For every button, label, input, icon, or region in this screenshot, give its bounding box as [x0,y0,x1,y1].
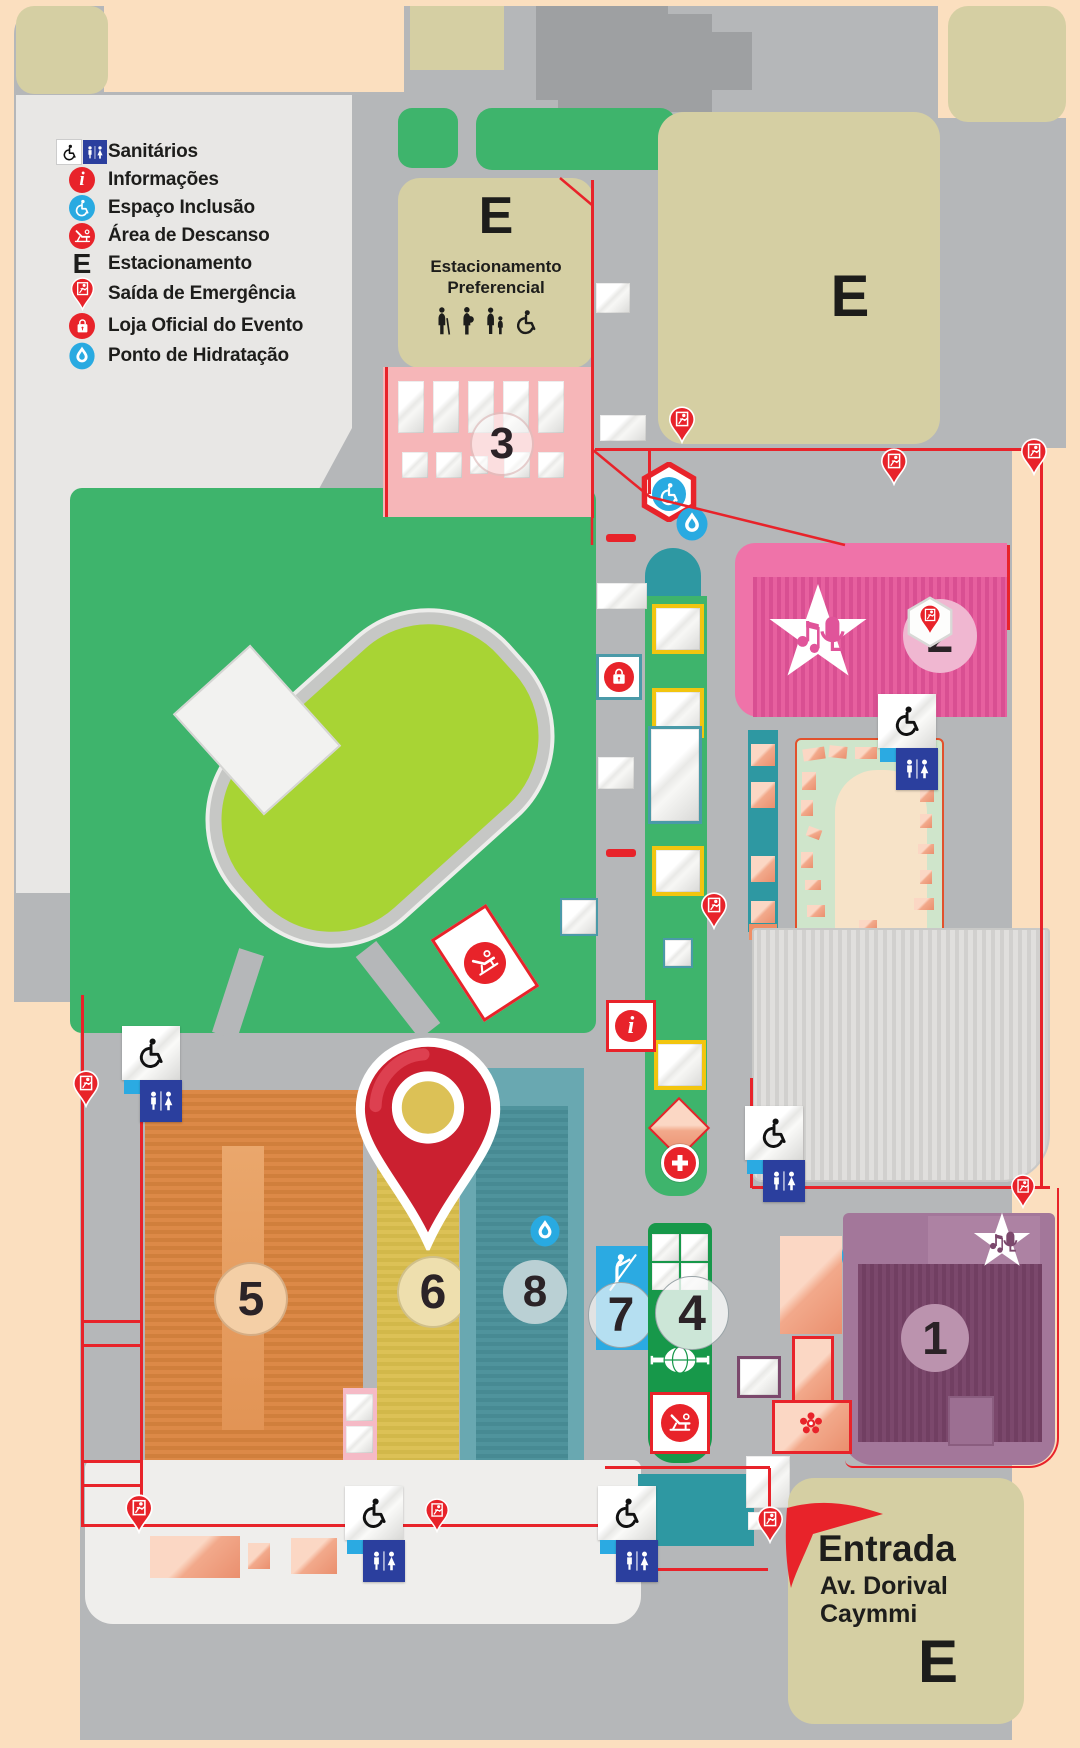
accessible-restroom-icon [598,1486,656,1540]
legend-label: Saída de Emergência [108,283,295,305]
perimeter-line [845,1188,1059,1468]
accessible-restroom-icon [878,694,936,748]
tent [433,381,459,433]
perimeter-line [605,1466,770,1469]
preferential-parking: E Estacionamento Preferencial [398,178,594,368]
legend-label: Sanitários [108,141,198,163]
preferential-title: Estacionamento [398,258,594,275]
info-glyph: i [628,1013,635,1040]
perimeter-line [591,180,594,518]
entrance-street-1: Av. Dorival [820,1572,948,1601]
perimeter-tick [81,1320,143,1323]
tent [737,1356,781,1398]
building [780,1236,842,1334]
shopping-bag-icon [604,662,634,692]
restroom-tab [124,1080,140,1094]
perimeter-line [595,448,1042,451]
accessible-restroom-icon [345,1486,403,1540]
area-7-label: 7 [608,1288,635,1343]
restroom-icon [616,1540,658,1582]
preferential-subtitle: Preferencial [398,279,594,296]
legend-label: Estacionamento [108,253,252,275]
emergency-exit-pin-icon [70,277,95,311]
parking-letter: E [73,248,92,280]
legend-item-espaco-inclusao: Espaço Inclusão [56,194,356,222]
tent [398,381,424,433]
tent [801,800,813,816]
tent [802,747,825,762]
area-6-number: 6 [397,1256,469,1328]
restroom-icon [896,748,938,790]
building [700,32,752,90]
tent [597,583,647,609]
tent [805,880,821,890]
restroom-icon [363,1540,405,1582]
perimeter-line [648,450,651,494]
lounge-chair-icon [69,223,95,249]
restroom-icons [56,140,108,164]
rest-area-point [650,1392,710,1454]
wheelchair-icon [69,195,95,221]
area-5-label: 5 [238,1272,265,1327]
tent [652,604,704,654]
tent [681,1234,708,1261]
tent [806,826,823,840]
area-3: 3 [383,367,593,517]
parking-patch-top-right [948,6,1066,122]
accessible-restroom-icon [122,1026,180,1080]
tent [751,856,775,882]
emergency-exit-pin [700,892,728,930]
restroom-tab [600,1540,616,1554]
area-6-label: 6 [420,1265,447,1320]
tent [751,901,775,923]
tent [600,415,646,441]
restroom-tab [347,1540,363,1554]
tent [654,1040,706,1090]
map-gap [14,1002,80,1740]
legend-item-estacionamento: E Estacionamento [56,250,356,278]
location-pin [352,1028,504,1260]
tent [751,744,775,766]
tent [920,814,932,828]
emergency-exit-pin [756,1506,784,1544]
tent [652,846,704,896]
legend: Sanitários i Informações Espaço Inclusão… [0,0,380,400]
restroom-point [745,1106,807,1206]
tent [802,772,816,790]
restroom-tab [747,1160,763,1174]
legend-label: Informações [108,169,219,191]
parking-letter-icon: E [56,248,108,280]
lounge-chair-icon [456,934,514,992]
tent [436,452,462,478]
legend-item-ponto-hidratacao: Ponto de Hidratação [56,342,356,370]
tent [346,1426,373,1453]
emergency-exit-pin [72,1070,100,1108]
tent [918,844,934,854]
legend-item-saida-emergencia: Saída de Emergência [56,280,356,308]
perimeter-tick [81,1460,143,1463]
area-7-number: 7 [588,1282,654,1348]
restroom-point [122,1026,184,1126]
tent [598,757,634,789]
tent [652,1234,679,1261]
restroom-point [598,1486,660,1586]
perimeter-line [140,1092,143,1504]
legend-item-loja-oficial: Loja Oficial do Evento [56,312,356,340]
tent [855,747,877,759]
legend-label: Loja Oficial do Evento [108,315,303,337]
tent [291,1538,337,1574]
emergency-exit-pin [880,448,908,486]
tent [801,852,813,868]
parking-patch [410,6,504,70]
elderly-icon [434,306,452,336]
tent [920,870,932,884]
tent [248,1543,270,1569]
area-4-number: 4 [655,1276,729,1350]
music-stage-icon [768,581,868,681]
pregnant-icon [460,306,476,336]
lounge-chair-icon [661,1404,699,1442]
area-2-stage: 2 [735,543,1007,717]
water-point-icon [530,1214,560,1248]
perimeter-line [1007,545,1010,630]
tent [828,745,847,759]
legend-label: Ponto de Hidratação [108,345,289,367]
flower-icon [797,1410,825,1438]
priority-icons [434,302,558,336]
parking-letter: E [878,1632,998,1692]
info-icon: i [615,1010,647,1042]
info-icon: i [69,167,95,193]
parent-child-icon [484,306,505,336]
restroom-icon [140,1080,182,1122]
emergency-exit-pin [1020,438,1048,476]
restroom-icon [763,1160,805,1202]
tent [807,905,825,917]
event-venue-map: E E Estacionamento Preferencial 3 2 [0,0,1080,1748]
tent [663,938,693,968]
parking-letter: E [398,190,594,242]
perimeter-tick [81,1484,143,1487]
area-5-number: 5 [214,1262,288,1336]
tent [538,381,564,433]
legend-item-sanitarios: Sanitários [56,138,356,166]
area-4-label: 4 [678,1284,706,1342]
building [536,44,590,100]
info-glyph: i [79,169,84,191]
legend-item-area-descanso: Área de Descanso [56,222,356,250]
green-strip [476,108,676,170]
water-drop-icon [69,342,95,370]
tent [402,452,428,478]
area-5: 5 [145,1090,363,1504]
area-3-number: 3 [470,412,534,476]
shopping-bag-icon [69,313,95,339]
tent [538,452,564,478]
perimeter-tick [81,1344,143,1347]
legend-item-informacoes: i Informações [56,166,356,194]
tent [751,782,775,808]
restroom-tab [880,748,896,762]
emergency-exit-pin [918,604,942,636]
road-marking [606,534,636,542]
water-point-icon [676,506,708,542]
perimeter-line [1040,450,1043,1188]
emergency-exit-pin [1010,1174,1036,1209]
building [618,14,712,112]
restroom-point [878,694,940,794]
entrance-title: Entrada [818,1528,956,1570]
legend-label: Área de Descanso [108,225,270,247]
accessible-restroom-icon [745,1106,803,1160]
tent [150,1536,240,1578]
tent [346,1394,373,1421]
parking-letter: E [790,268,910,326]
legend-label: Espaço Inclusão [108,197,255,219]
green-strip [398,108,458,168]
perimeter-line [81,1524,605,1527]
perimeter-line [385,367,388,517]
wheelchair-icon [513,308,539,336]
tent [596,283,630,313]
road-marking [606,849,636,857]
entrance-street-2: Caymmi [820,1600,917,1629]
tent [560,898,598,936]
first-aid-icon [661,1144,699,1182]
emergency-exit-pin [124,1494,154,1534]
tent [648,726,702,824]
emergency-exit-pin [424,1498,450,1533]
area-8-number: 8 [503,1260,567,1324]
restroom-point [345,1486,407,1586]
tent [914,898,934,910]
area-8-label: 8 [523,1267,547,1317]
emergency-exit-pin [668,406,696,444]
information-point: i [606,1000,656,1052]
area-3-label: 3 [490,419,514,469]
official-store [596,654,642,700]
